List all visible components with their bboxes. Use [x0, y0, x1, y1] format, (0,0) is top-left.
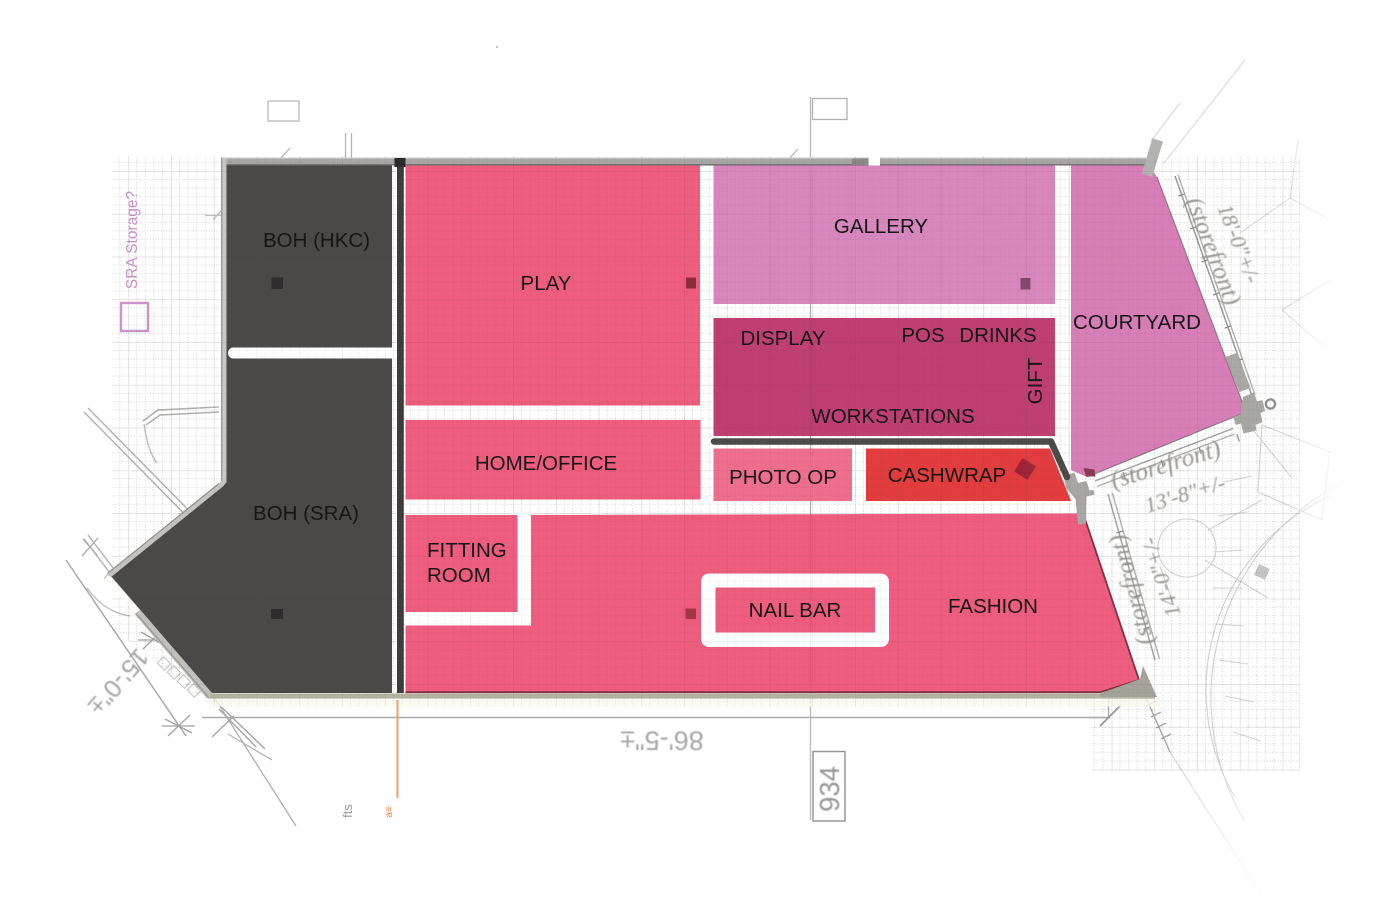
svg-text:ROOM: ROOM: [427, 564, 491, 587]
svg-text:PLAY: PLAY: [521, 272, 572, 295]
svg-text:POS: POS: [901, 324, 944, 347]
svg-text:a≡: a≡: [384, 806, 395, 818]
svg-text:WORKSTATIONS: WORKSTATIONS: [811, 405, 974, 428]
svg-text:FITTING: FITTING: [427, 539, 507, 562]
svg-text:DRINKS: DRINKS: [959, 324, 1036, 347]
svg-text:GIFT: GIFT: [1024, 357, 1047, 404]
svg-text:GALLERY: GALLERY: [834, 215, 929, 238]
svg-text:BOH (HKC): BOH (HKC): [263, 229, 370, 252]
svg-text:86'-5"±: 86'-5"±: [620, 726, 704, 756]
svg-text:BOH (SRA): BOH (SRA): [253, 502, 359, 525]
svg-text:SRA Storage?: SRA Storage?: [124, 191, 141, 290]
svg-text:CASHWRAP: CASHWRAP: [888, 464, 1006, 487]
svg-text:PHOTO OP: PHOTO OP: [729, 466, 837, 489]
svg-text:934: 934: [814, 766, 845, 812]
svg-text:DISPLAY: DISPLAY: [740, 327, 825, 350]
svg-text:HOME/OFFICE: HOME/OFFICE: [475, 452, 617, 475]
svg-text:NAIL BAR: NAIL BAR: [749, 599, 842, 622]
svg-text:FASHION: FASHION: [948, 595, 1038, 618]
svg-text:COURTYARD: COURTYARD: [1073, 311, 1201, 334]
svg-text:fts: fts: [340, 804, 355, 818]
